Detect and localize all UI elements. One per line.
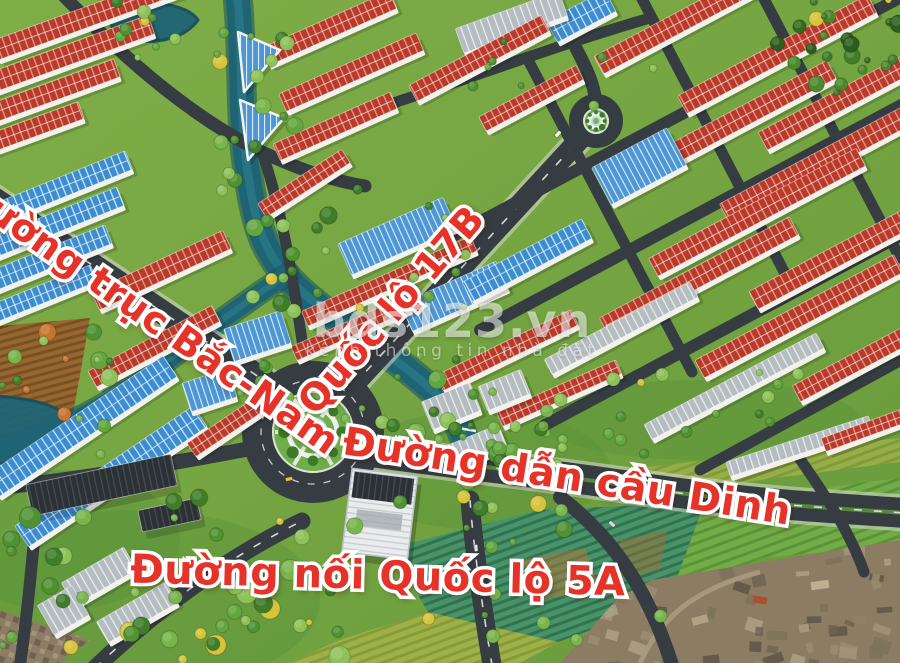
aerial-scene — [0, 0, 900, 663]
masterplan-aerial-render: Đường trục Bắc-Nam Đường trục Bắc-Nam Qu… — [0, 0, 900, 663]
